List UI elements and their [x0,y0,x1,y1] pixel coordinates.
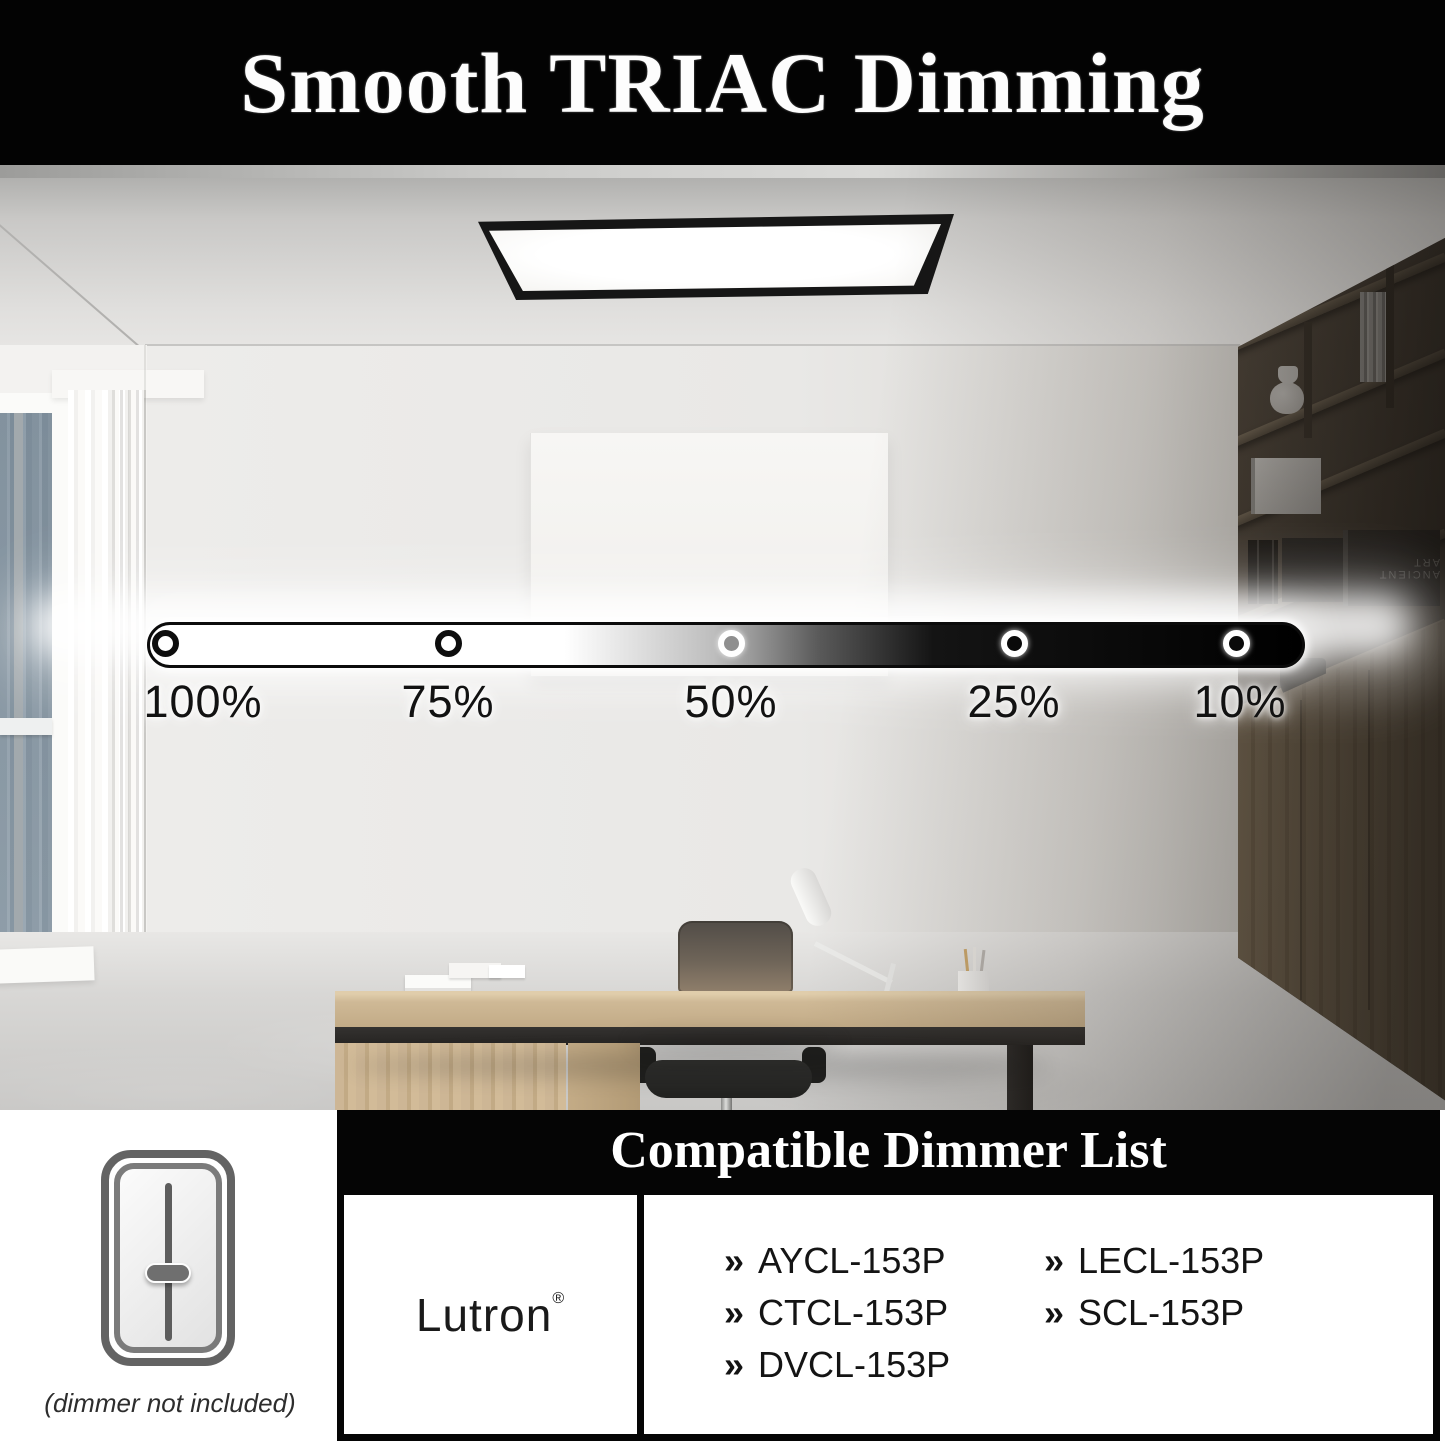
title-banner: Smooth TRIAC Dimming [0,0,1445,165]
wall-ceiling-line [145,344,1240,346]
chevrons-icon: » [1044,1292,1064,1334]
brand-cell: Lutron® [344,1195,637,1434]
desk-lamp-head [787,864,835,929]
page-title: Smooth TRIAC Dimming [240,33,1205,133]
models-column-2: »LECL-153P »SCL-153P [1044,1235,1264,1339]
desk-shadow [350,1053,1050,1079]
model-number: SCL-153P [1078,1292,1244,1334]
chevrons-icon: » [1044,1240,1064,1282]
led-panel-lit-surface [489,224,941,291]
paper-box [489,965,525,978]
brand-text: Lutron [416,1289,552,1341]
model-number: CTCL-153P [758,1292,948,1334]
model-item: »DVCL-153P [724,1339,950,1391]
chair-shadow [630,1035,840,1053]
chevrons-icon: » [724,1344,744,1386]
pencil [964,949,969,973]
dimmer-note: (dimmer not included) [20,1388,320,1419]
model-item: »AYCL-153P [724,1235,950,1287]
desk-top [335,991,1085,1027]
dim-level-marker-50 [718,630,745,657]
dimmer-slider-handle [145,1263,191,1283]
model-number: LECL-153P [1078,1240,1264,1282]
dim-level-marker-10 [1223,630,1250,657]
dim-level-label: 10% [1165,676,1315,728]
dimmer-switch-plate [114,1163,222,1353]
model-item: »SCL-153P [1044,1287,1264,1339]
dim-level-label: 75% [373,676,523,728]
registered-mark: ® [552,1290,565,1307]
dim-level-marker-75 [435,630,462,657]
models-column-1: »AYCL-153P »CTCL-153P »DVCL-153P [724,1235,950,1391]
pencil [973,947,976,971]
dim-level-label: 50% [656,676,806,728]
dim-level-marker-100 [152,630,179,657]
ceiling-edge [0,165,1445,178]
brand-name: Lutron® [416,1288,565,1342]
panel-header: Compatible Dimmer List [337,1110,1440,1190]
dim-level-label: 25% [939,676,1089,728]
product-infographic: Smooth TRIAC Dimming [0,0,1445,1445]
window-transom [0,718,52,735]
compatible-dimmer-panel: Compatible Dimmer List Lutron® »AYCL-153… [337,1110,1440,1441]
model-item: »CTCL-153P [724,1287,950,1339]
chevrons-icon: » [724,1240,744,1282]
window-sill [0,946,95,983]
dim-level-label: 100% [128,676,278,728]
model-number: DVCL-153P [758,1344,950,1386]
dim-level-marker-25 [1001,630,1028,657]
dimmer-slider-track [165,1183,172,1341]
model-item: »LECL-153P [1044,1235,1264,1287]
desk-leg [1007,1045,1033,1110]
led-panel-light [478,214,954,300]
dimmer-switch-icon [101,1150,235,1366]
models-cell: »AYCL-153P »CTCL-153P »DVCL-153P »LECL-1… [644,1195,1433,1434]
model-number: AYCL-153P [758,1240,945,1282]
chevrons-icon: » [724,1292,744,1334]
desk-lamp-arm [814,941,893,984]
